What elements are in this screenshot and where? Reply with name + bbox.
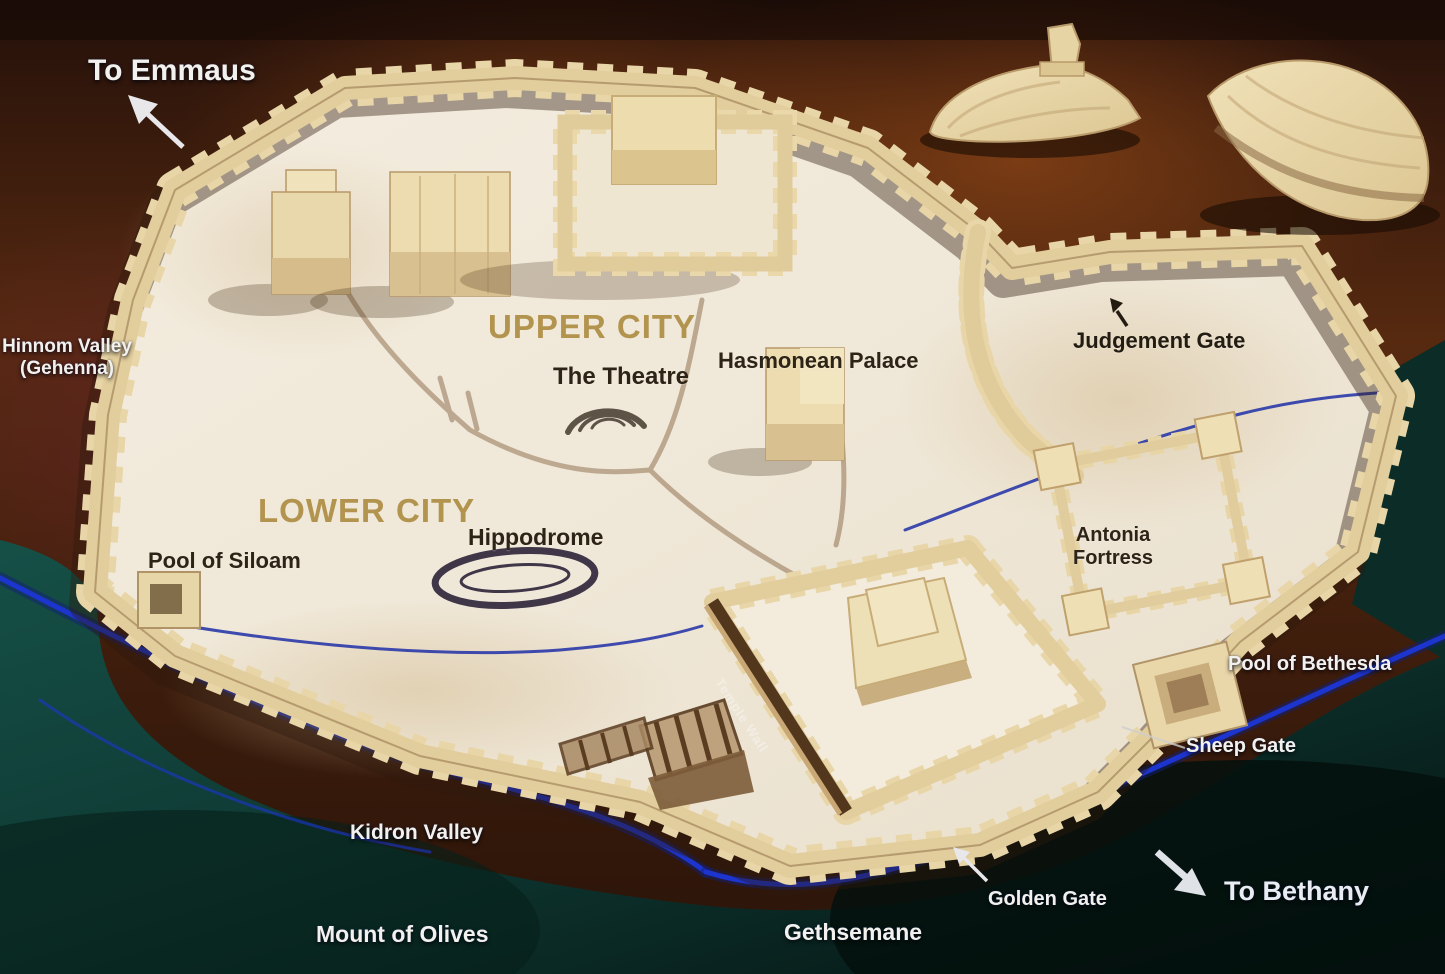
antonia-fortress-label: Antonia Fortress: [1048, 524, 1178, 570]
antonia-fortress-line1: Antonia: [1048, 524, 1178, 547]
hippodrome-label: Hippodrome: [468, 524, 603, 550]
pool-of-siloam-label: Pool of Siloam: [148, 548, 301, 573]
to-bethany-label: To Bethany: [1224, 876, 1369, 907]
golden-gate-label: Golden Gate: [988, 888, 1107, 911]
upper-city-label: UPPER CITY: [488, 308, 696, 346]
hinnom-valley-line2: (Gehenna): [2, 358, 132, 380]
lower-city-label: LOWER CITY: [258, 492, 475, 530]
theatre-label: The Theatre: [553, 363, 689, 391]
mount-of-olives-label: Mount of Olives: [316, 921, 489, 947]
pool-of-siloam-block: [138, 572, 200, 628]
judgement-gate-label: Judgement Gate: [1073, 328, 1245, 353]
model-scene: [0, 0, 1445, 974]
sheep-gate-label: Sheep Gate: [1186, 735, 1296, 758]
kidron-valley-label: Kidron Valley: [350, 821, 483, 845]
gethsemane-label: Gethsemane: [784, 919, 922, 945]
hinnom-valley-line1: Hinnom Valley: [2, 336, 132, 358]
jerusalem-model-map: To Emmaus Hinnom Valley (Gehenna) UPPER …: [0, 0, 1445, 974]
pool-of-bethesda-label: Pool of Bethesda: [1228, 653, 1391, 676]
hinnom-valley-label: Hinnom Valley (Gehenna): [2, 336, 132, 380]
antonia-fortress-line2: Fortress: [1048, 547, 1178, 570]
to-emmaus-label: To Emmaus: [88, 54, 256, 89]
hasmonean-palace-label: Hasmonean Palace: [718, 348, 919, 373]
